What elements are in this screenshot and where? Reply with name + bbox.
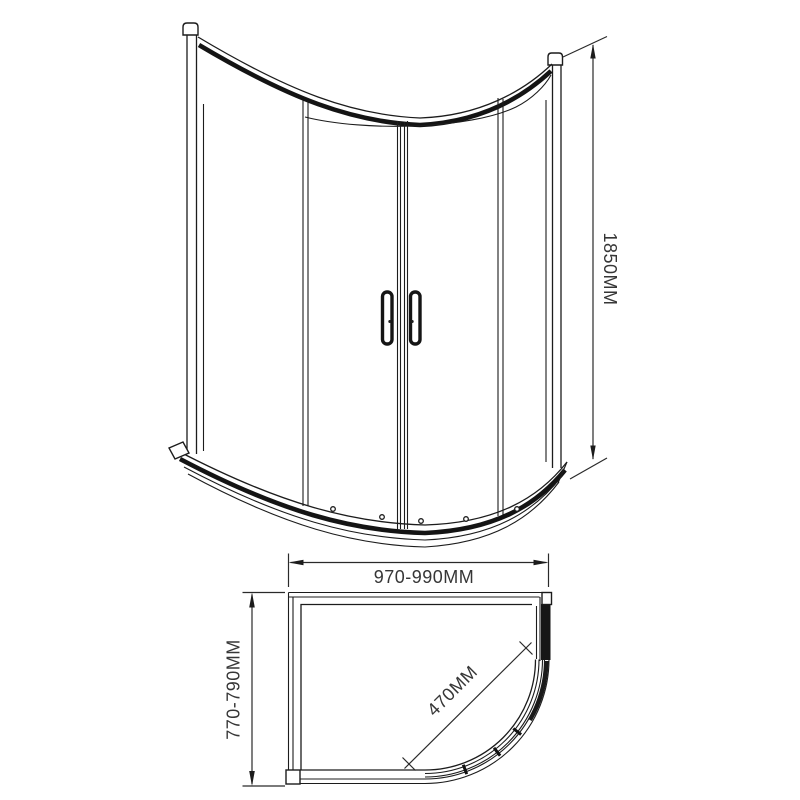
depth-dimension-label: 770-790MM [224, 639, 244, 740]
width-arrow-left [289, 560, 304, 566]
width-dimension-label: 970-990MM [374, 567, 475, 587]
left-profile-cap [183, 23, 198, 35]
door-opening-dimension: 470MM [403, 642, 533, 771]
height-extension-line-bottom [570, 458, 607, 479]
roller [331, 507, 336, 512]
width-dimension: 970-990MM [289, 554, 549, 588]
width-arrow-right [534, 560, 549, 566]
drawing-svg: 1850MM [0, 0, 800, 800]
roller [380, 515, 385, 520]
height-extension-line-top [563, 37, 607, 58]
corner-block [286, 770, 300, 784]
right-door-handle [411, 292, 421, 344]
door-handles [383, 292, 421, 344]
bottom-rail-left-end-cap [169, 442, 189, 459]
door-track-arc [425, 660, 539, 774]
roller [515, 507, 520, 512]
height-dimension: 1850MM [563, 37, 620, 480]
plan-bottom-inner-line [293, 660, 545, 780]
shower-enclosure-technical-drawing: 1850MM [0, 0, 800, 800]
right-wall-profile [546, 53, 563, 468]
depth-arrow-up [249, 593, 255, 608]
right-profile-cap [548, 53, 563, 65]
side-wall-profile-bar [541, 604, 551, 660]
plan-view: 970-990MM 770-790MM 470MM [224, 554, 552, 787]
height-arrow-up [590, 44, 595, 59]
bottom-rail-band [180, 459, 565, 533]
left-wall-profile [183, 23, 204, 454]
bottom-rail [169, 442, 567, 547]
roller [464, 517, 469, 522]
height-dimension-label: 1850MM [600, 232, 620, 305]
top-rail [198, 37, 552, 126]
roller [419, 519, 424, 524]
door-track-arc [425, 660, 543, 778]
right-handle-fixing-dot [411, 320, 414, 323]
top-right-connector-block [542, 593, 552, 605]
door-stiles [303, 98, 503, 529]
front-elevation-view: 1850MM [169, 23, 620, 547]
left-handle-fixing-dot [388, 320, 391, 323]
depth-dimension: 770-790MM [224, 593, 286, 787]
door-opening-dimension-label: 470MM [423, 662, 481, 720]
height-arrow-down [590, 446, 595, 461]
depth-arrow-down [249, 771, 255, 786]
left-door-handle [383, 292, 393, 344]
plan-bottom-outer-line [289, 660, 550, 784]
